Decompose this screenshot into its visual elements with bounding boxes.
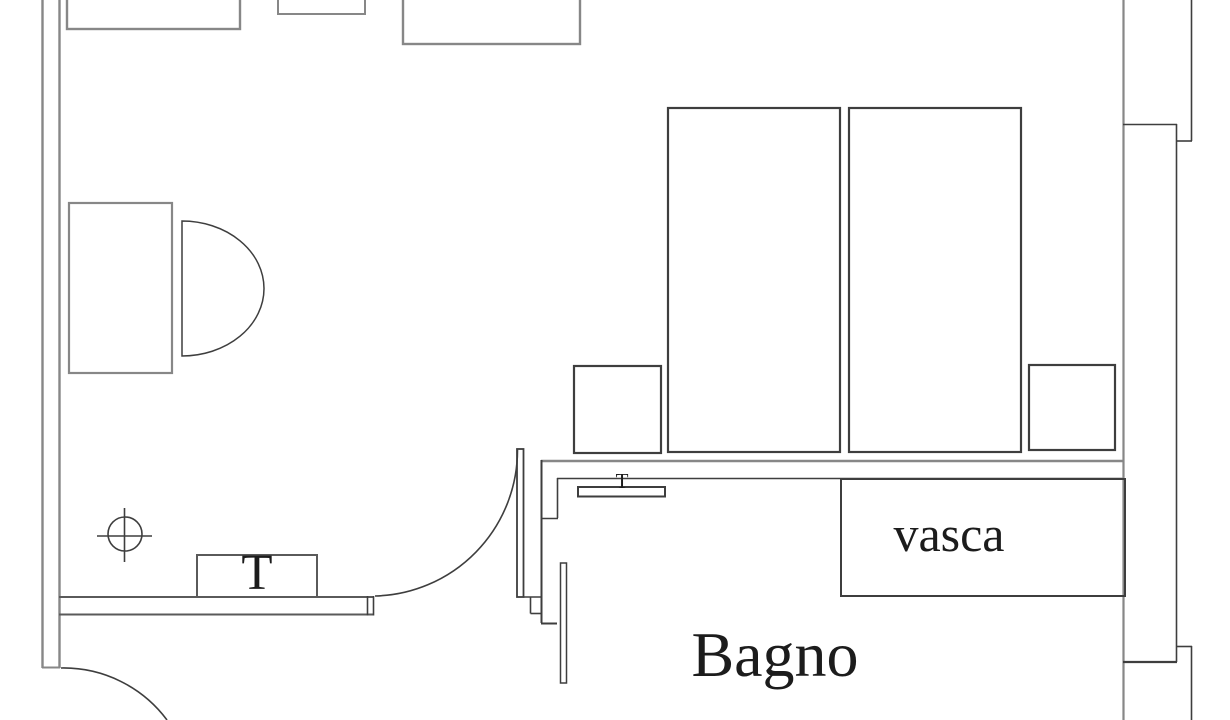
bathroom-door-leaf	[561, 563, 567, 683]
main-door	[375, 449, 524, 597]
bottom-wall	[59, 596, 374, 616]
bed-left	[668, 108, 840, 452]
wardrobe-top-left	[67, 0, 240, 29]
nightstand-left	[574, 366, 661, 453]
chair	[182, 221, 264, 356]
bathroom-shelf-label: T	[601, 471, 643, 491]
door-jamb-steps	[524, 597, 542, 614]
cabinet-top-right	[403, 0, 580, 44]
floor-plan: Bagno vasca T T	[0, 0, 1230, 720]
nightstand-right	[1029, 365, 1115, 450]
left-wall	[42, 0, 60, 668]
entry-door-arc	[61, 668, 167, 720]
floor-plan-drawing	[0, 0, 1230, 720]
bathroom-label: Bagno	[673, 618, 877, 692]
ceiling-light-symbol	[97, 508, 152, 562]
tv-table-label: T	[197, 550, 317, 596]
bed-right	[849, 108, 1021, 452]
desk	[69, 203, 172, 373]
cabinet-top-center	[278, 0, 365, 14]
right-wall	[1123, 0, 1192, 720]
bathtub-label: vasca	[869, 505, 1029, 563]
